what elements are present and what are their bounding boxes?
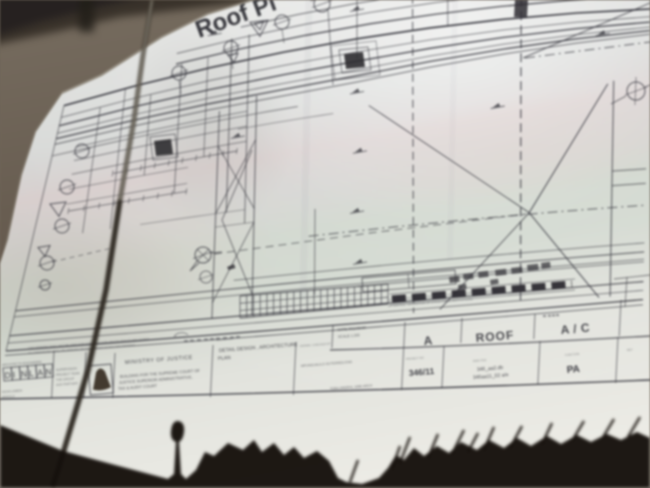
svg-text:N: N: [45, 367, 52, 377]
svg-text:346/11: 346/11: [408, 366, 435, 378]
svg-text:REV: REV: [627, 348, 633, 352]
svg-text:A: A: [423, 333, 433, 348]
svg-text:PLAN: PLAN: [218, 355, 232, 362]
svg-text:A / C: A / C: [560, 321, 590, 337]
svg-text:PA: PA: [566, 364, 580, 376]
svg-text:① — —: ① — —: [175, 334, 186, 339]
svg-text:D: D: [4, 370, 11, 380]
svg-text:N: N: [21, 369, 28, 379]
